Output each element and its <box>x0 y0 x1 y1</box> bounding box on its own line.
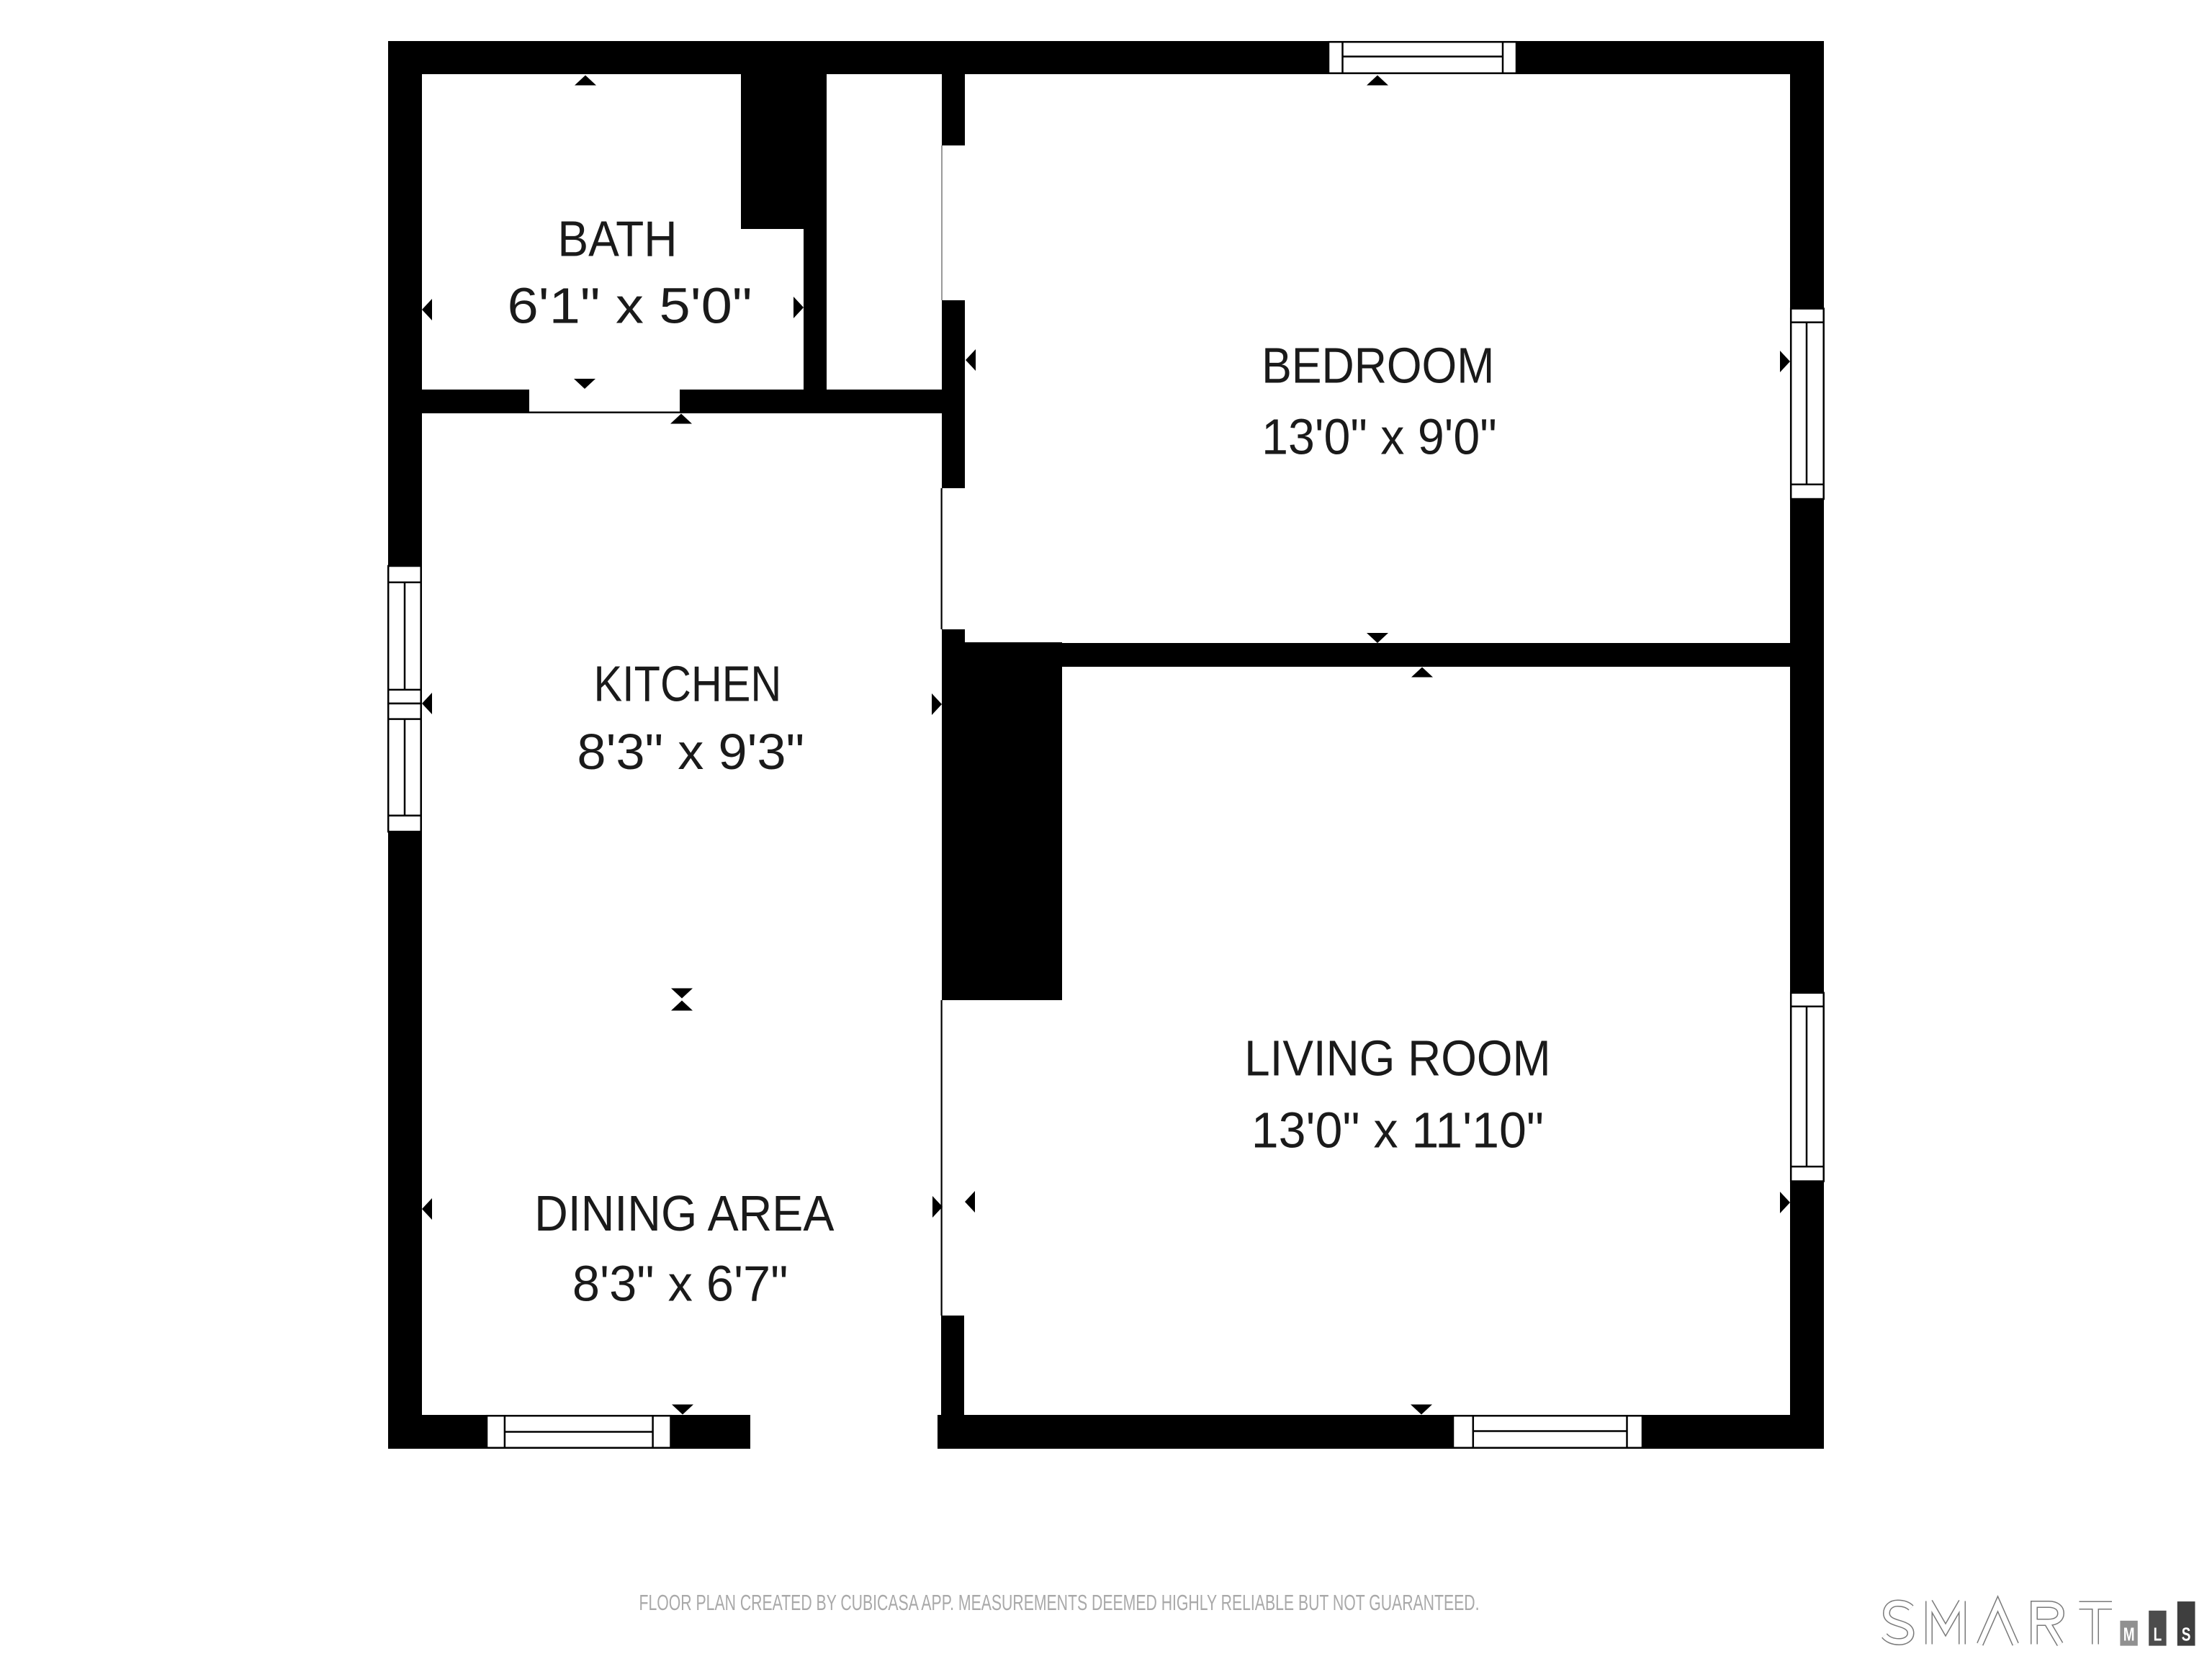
svg-text:KITCHEN: KITCHEN <box>593 655 781 712</box>
svg-text:FLOOR PLAN CREATED BY CUBICASA: FLOOR PLAN CREATED BY CUBICASA APP. MEAS… <box>639 1590 1480 1615</box>
svg-text:8'3" x 9'3": 8'3" x 9'3" <box>577 724 804 781</box>
svg-text:L: L <box>2154 1624 2162 1645</box>
svg-text:13'0" x 9'0": 13'0" x 9'0" <box>1262 409 1497 465</box>
svg-text:6'1" x 5'0": 6'1" x 5'0" <box>508 277 752 334</box>
svg-text:S: S <box>2182 1624 2191 1645</box>
svg-text:BEDROOM: BEDROOM <box>1262 338 1494 394</box>
svg-text:8'3" x 6'7": 8'3" x 6'7" <box>572 1255 788 1312</box>
svg-text:13'0" x 11'10": 13'0" x 11'10" <box>1251 1102 1544 1159</box>
svg-text:BATH: BATH <box>557 211 677 267</box>
svg-text:M: M <box>2123 1624 2135 1645</box>
svg-text:LIVING ROOM: LIVING ROOM <box>1244 1030 1551 1087</box>
svg-text:DINING AREA: DINING AREA <box>534 1186 834 1242</box>
